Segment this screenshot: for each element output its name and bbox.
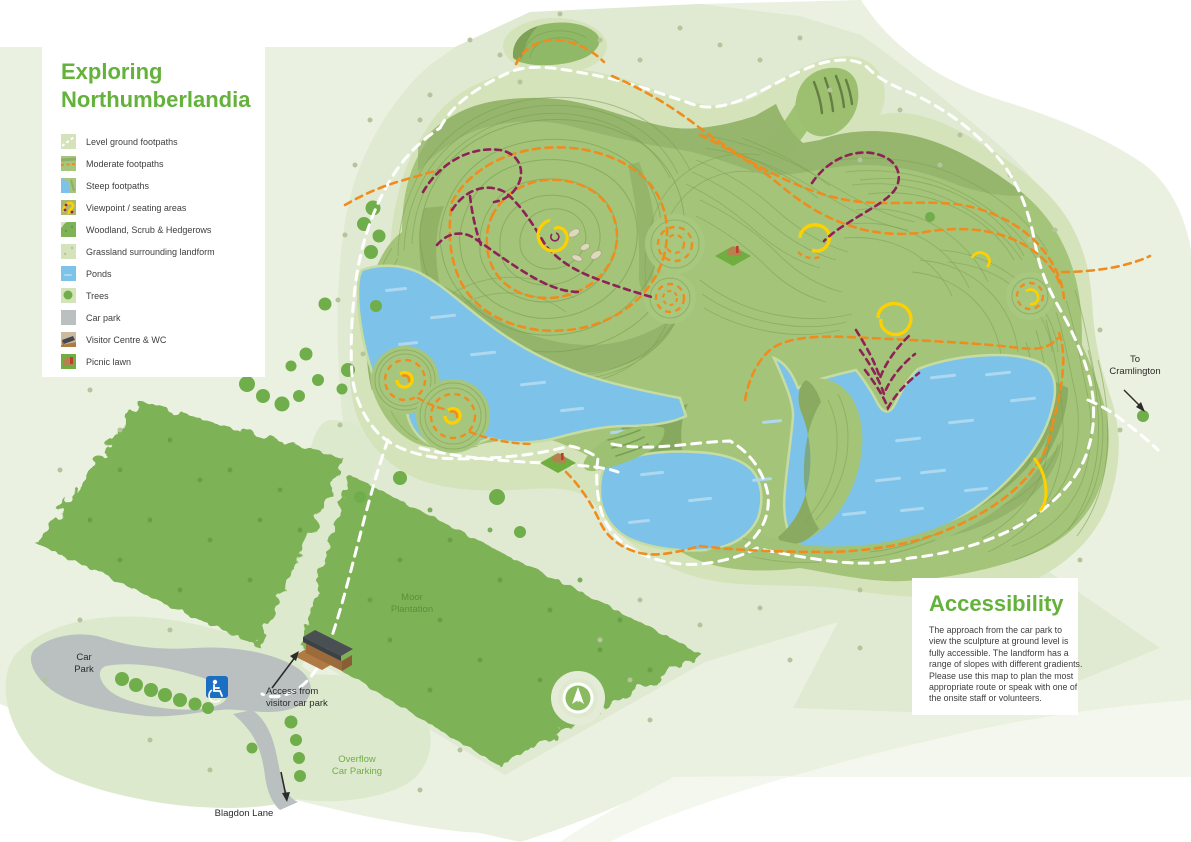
svg-text:Cramlington: Cramlington xyxy=(1109,366,1160,377)
svg-text:Plantation: Plantation xyxy=(391,604,433,615)
svg-text:Overflow: Overflow xyxy=(338,754,376,765)
svg-text:Moor: Moor xyxy=(401,592,423,603)
svg-text:Car: Car xyxy=(76,652,91,663)
svg-text:N: N xyxy=(574,695,580,704)
svg-text:Blagdon Lane: Blagdon Lane xyxy=(215,808,274,819)
svg-text:Car Parking: Car Parking xyxy=(332,766,382,777)
svg-text:Park: Park xyxy=(74,664,94,675)
svg-text:visitor car park: visitor car park xyxy=(266,698,328,709)
svg-text:To: To xyxy=(1130,354,1140,365)
svg-text:Access from: Access from xyxy=(266,686,318,697)
